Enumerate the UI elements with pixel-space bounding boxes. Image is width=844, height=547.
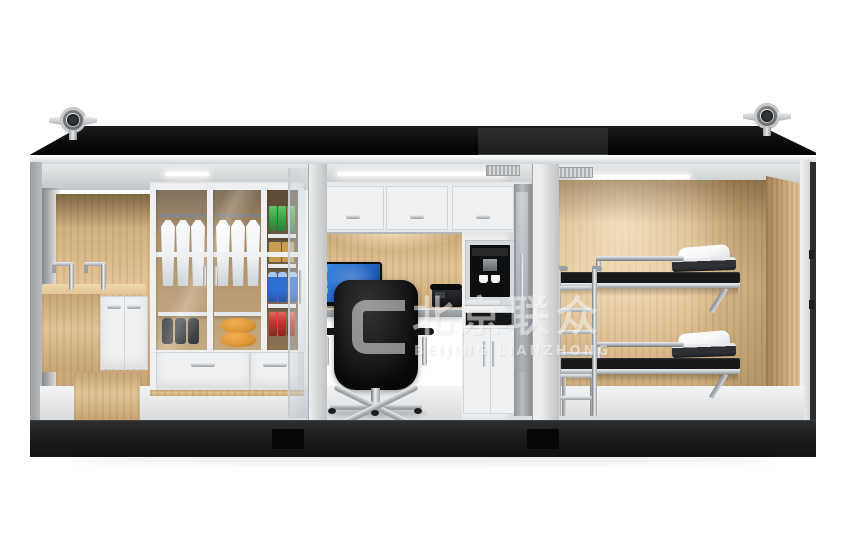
forklift-pocket bbox=[272, 429, 304, 449]
faucet-body bbox=[101, 264, 106, 290]
door-handle bbox=[107, 305, 121, 309]
wardrobe-frame bbox=[154, 184, 300, 189]
cabinet-handle bbox=[346, 215, 360, 219]
chair-caster bbox=[328, 408, 336, 414]
coffee-machine-panel bbox=[472, 248, 508, 256]
door-split-line bbox=[490, 329, 491, 413]
wardrobe-door-handle bbox=[214, 266, 217, 286]
red-can bbox=[278, 312, 286, 336]
phone-handset bbox=[430, 284, 462, 290]
roof-vent-fan-icon bbox=[50, 104, 96, 142]
bunk-guard-rail bbox=[596, 256, 684, 261]
water-bottle bbox=[278, 272, 287, 302]
vanity-wood-column bbox=[74, 372, 140, 420]
forklift-pocket bbox=[527, 429, 559, 449]
snack-pack bbox=[278, 206, 286, 231]
vent-hub-icon bbox=[67, 114, 79, 126]
coffee-dispenser bbox=[483, 259, 497, 271]
ground-shadow bbox=[70, 455, 776, 464]
cabinet-door bbox=[452, 186, 514, 230]
coffee-machine bbox=[470, 245, 510, 297]
chair-caster bbox=[414, 408, 422, 414]
overhead-cabinets bbox=[318, 182, 530, 234]
vent-wing-icon bbox=[84, 116, 97, 125]
vent-neck bbox=[69, 131, 77, 140]
door-hinge bbox=[809, 250, 814, 259]
drawer-handle bbox=[263, 363, 287, 367]
chair-caster bbox=[371, 410, 379, 416]
led-strip-light bbox=[337, 172, 505, 176]
coffee-cup bbox=[491, 275, 500, 283]
wardrobe-door-handle bbox=[203, 266, 206, 286]
watermark-logo bbox=[352, 300, 405, 354]
partition-cut-wall bbox=[308, 164, 327, 420]
wardrobe-frame bbox=[261, 188, 267, 352]
vent-wing-icon bbox=[778, 112, 791, 121]
watermark-cjk-text: 北京联众 bbox=[412, 296, 662, 338]
right-cut-edge bbox=[810, 162, 816, 420]
vanity-wood-front bbox=[42, 294, 100, 372]
bunk-ladder bbox=[554, 266, 602, 418]
container-unit-render: 北京联众 BEIJING LIANZHONG bbox=[0, 0, 844, 547]
cabinet-handle bbox=[476, 215, 490, 219]
vanity-cabinet-doors bbox=[100, 296, 148, 370]
wardrobe-drawer bbox=[156, 352, 250, 392]
faucet-icon bbox=[84, 260, 108, 290]
wardrobe-frame bbox=[154, 252, 300, 257]
faucet-body bbox=[69, 264, 74, 290]
rooftop-ac-unit bbox=[478, 128, 608, 156]
cabinet-door bbox=[322, 186, 384, 230]
led-strip-light bbox=[165, 172, 209, 176]
faucet-nozzle bbox=[84, 265, 88, 273]
door-split-line bbox=[124, 297, 125, 369]
vent-neck bbox=[763, 127, 771, 136]
door-hinge bbox=[809, 300, 814, 309]
faucet-icon bbox=[52, 260, 76, 290]
container-chassis-base bbox=[30, 420, 816, 457]
left-cut-wall bbox=[30, 162, 42, 420]
wardrobe-kick-plate bbox=[150, 390, 304, 396]
door-handle bbox=[127, 305, 141, 309]
snack-pack bbox=[269, 206, 277, 231]
door-handle bbox=[299, 270, 302, 304]
ceiling-vent-grille bbox=[486, 165, 520, 176]
led-strip-light bbox=[578, 175, 690, 179]
coffee-cup bbox=[479, 275, 488, 283]
vent-hub-icon bbox=[761, 110, 773, 122]
red-can bbox=[269, 312, 277, 336]
ladder-rung bbox=[560, 396, 592, 400]
wardrobe-cabinet bbox=[150, 182, 304, 394]
water-bottle bbox=[268, 272, 277, 302]
ladder-rung bbox=[560, 286, 592, 290]
ladder-rung bbox=[560, 374, 592, 378]
cabinet-handle bbox=[410, 215, 424, 219]
faucet-nozzle bbox=[52, 265, 56, 273]
roof-vent-fan-icon bbox=[744, 100, 790, 138]
wardrobe-frame bbox=[207, 188, 213, 352]
watermark-latin-text: BEIJING LIANZHONG bbox=[414, 344, 664, 359]
wardrobe-frame bbox=[150, 188, 156, 352]
cabinet-door bbox=[386, 186, 448, 230]
drawer-handle bbox=[191, 363, 215, 367]
